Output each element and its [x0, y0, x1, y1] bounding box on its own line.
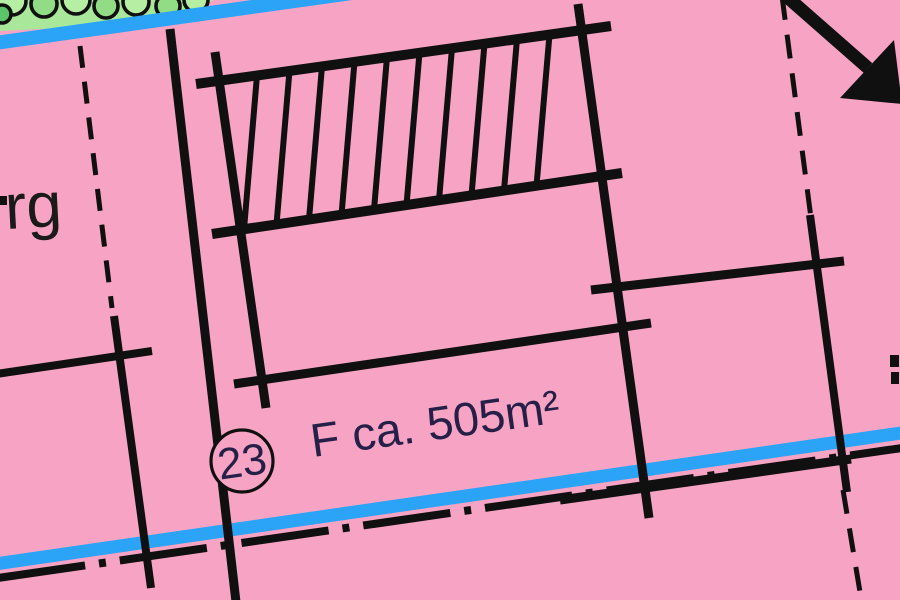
street-name-fragment: rg — [3, 168, 64, 243]
parcel-number: 23 — [214, 434, 269, 489]
vegetation-symbol — [0, 5, 11, 23]
zoning-plan-canvas[interactable]: rgF ca. 505m²23 — [0, 0, 900, 600]
vegetation-symbol — [123, 0, 149, 15]
zoning-plan-viewport: rgF ca. 505m²23 — [0, 0, 900, 600]
clipped-text-fragment-right-2 — [891, 372, 899, 384]
vegetation-symbol — [62, 0, 90, 14]
clipped-text-fragment-right-1 — [890, 355, 899, 367]
vegetation-symbol — [31, 0, 57, 17]
vegetation-symbol — [94, 0, 118, 18]
